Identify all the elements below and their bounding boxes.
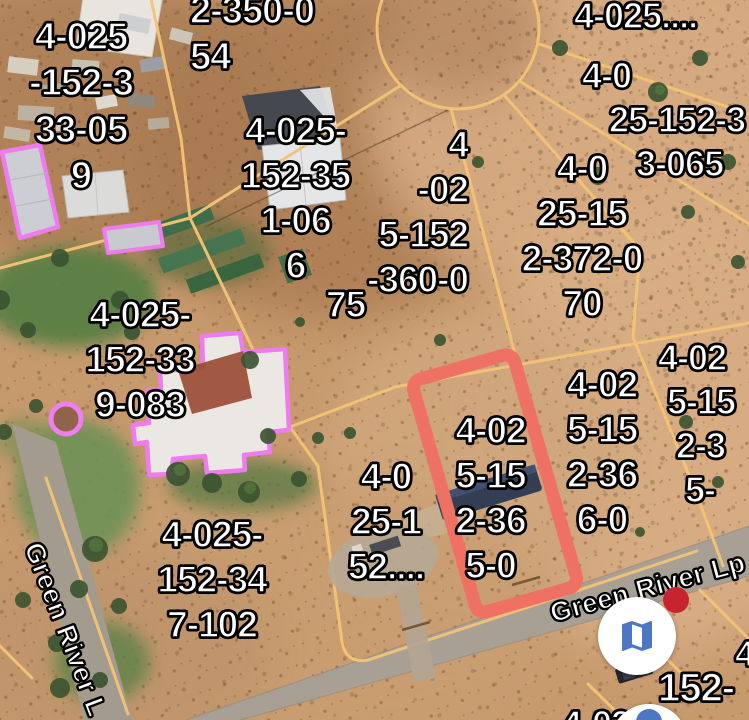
map-layers-button[interactable] [598, 597, 676, 675]
parcel-label: 4-0 25-15 2-372-0 70 [492, 146, 672, 327]
parcel-label: 4-025 -152-3 33-05 9 [10, 14, 152, 199]
parcel-label: 152- [658, 664, 734, 713]
parcel-label: 4-025- 152-33 9-083 [58, 292, 222, 427]
parcel-label: 4-0 25-1 52.... [320, 454, 452, 589]
parcel-label: 4-025- 152-34 7-102 [132, 512, 292, 647]
parcel-label: 4 -02 5-152 -360-0 [300, 122, 468, 303]
map-icon [617, 616, 657, 656]
parcel-label: 4-02 5-15 2-3 5- [658, 336, 735, 512]
parcel-label: 2-350-0 54 [190, 0, 314, 81]
notification-dot [663, 587, 689, 613]
parcel-label: 4-02 5-15 2-36 6-0 [528, 362, 676, 543]
location-icon [636, 709, 662, 720]
parcel-label: 4 [735, 632, 749, 676]
parcel-label: 75 [326, 282, 365, 327]
map-canvas[interactable]: 4-025 -152-3 33-05 9 2-350-0 54 4-025...… [0, 0, 749, 720]
parcel-label: 4-025.... [574, 0, 697, 38]
